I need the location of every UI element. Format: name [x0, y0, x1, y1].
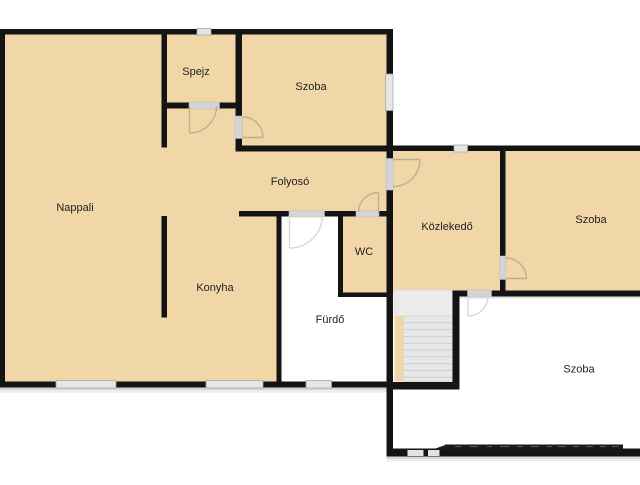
svg-text:Fürdő: Fürdő	[316, 314, 345, 326]
svg-text:Szoba: Szoba	[575, 214, 607, 226]
svg-text:Konyha: Konyha	[196, 282, 234, 294]
svg-text:Szoba: Szoba	[563, 364, 595, 376]
svg-text:Szoba: Szoba	[295, 81, 327, 93]
svg-text:Nappali: Nappali	[56, 202, 93, 214]
svg-text:Folyosó: Folyosó	[271, 176, 310, 188]
svg-text:WC: WC	[355, 246, 373, 258]
svg-text:Közlekedő: Közlekedő	[421, 221, 472, 233]
svg-text:Spejz: Spejz	[182, 66, 210, 78]
